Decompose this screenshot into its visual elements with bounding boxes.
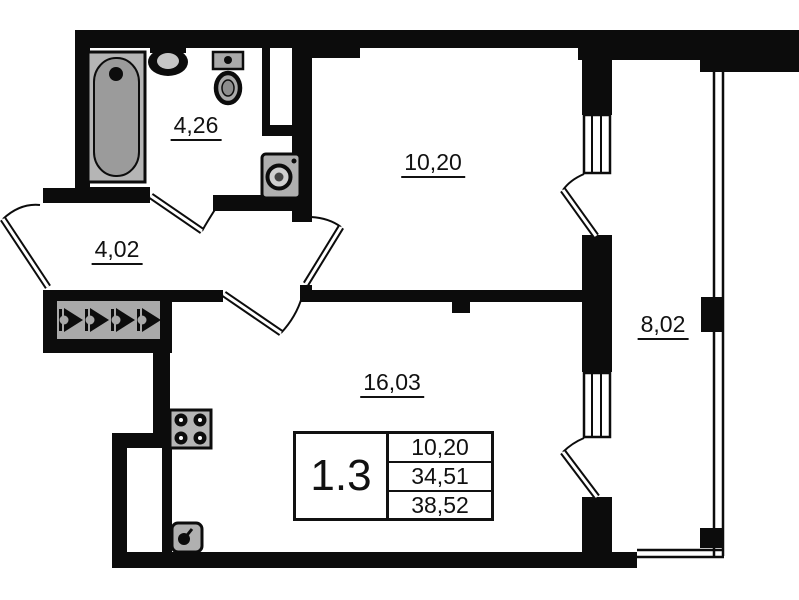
unit-areas: 10,20 34,51 38,52	[389, 434, 491, 518]
living-room-window	[584, 373, 610, 437]
wall-segment	[582, 44, 612, 115]
washer-drum-icon	[275, 173, 284, 182]
balcony-area-label: 8,02	[638, 312, 689, 340]
living-room-area-label: 16,03	[360, 370, 424, 398]
wall-segment	[582, 235, 612, 372]
unit-total-area: 38,52	[389, 492, 491, 519]
bedroom-area-label: 10,20	[401, 150, 465, 178]
bath-sink	[148, 48, 188, 76]
bathroom-area-label: 4,26	[171, 113, 222, 141]
wall-segment	[43, 188, 90, 203]
floor-plan: 4,26 4,02 10,20 16,03 8,02 1.3 10,20 34,…	[0, 0, 799, 600]
unit-living-area: 10,20	[389, 434, 491, 463]
wall-segment	[112, 552, 637, 568]
stove	[170, 410, 211, 448]
toilet	[213, 52, 243, 103]
wall-segment	[262, 48, 270, 128]
bedroom-window	[584, 115, 610, 173]
wall-segment	[452, 302, 470, 313]
wall-segment	[112, 433, 127, 568]
wall-segment	[262, 125, 297, 136]
wardrobe	[43, 290, 172, 353]
bathtub	[88, 52, 145, 182]
wall-segment	[312, 290, 582, 302]
bathtub-drain-icon	[109, 67, 123, 81]
unit-number: 1.3	[296, 434, 389, 518]
wall-segment	[700, 528, 724, 548]
wall-segment	[75, 30, 799, 48]
washing-machine	[262, 154, 300, 198]
hallway-area-label: 4,02	[92, 237, 143, 265]
unit-info-box: 1.3 10,20 34,51 38,52	[293, 431, 494, 521]
unit-area: 34,51	[389, 463, 491, 492]
wall-segment	[312, 48, 360, 58]
kitchen-sink	[172, 523, 202, 552]
wall-segment	[90, 187, 150, 203]
wall-segment	[701, 297, 724, 332]
